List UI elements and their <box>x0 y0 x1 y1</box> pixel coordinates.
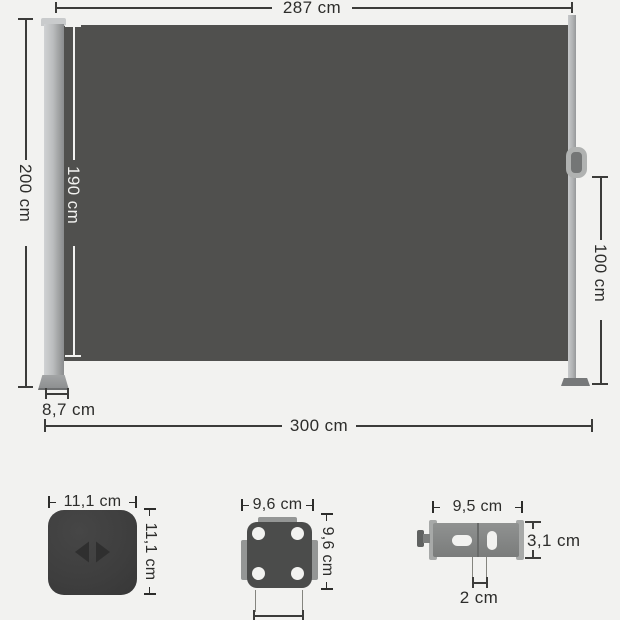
dim-left-line-bottom <box>25 246 27 387</box>
grip-arrow-left-icon <box>75 540 89 564</box>
left-post-foot <box>38 375 69 390</box>
bracket-slot-vertical <box>487 531 497 550</box>
grip-arrow-right-icon <box>96 540 110 564</box>
dim-fabric-line-top <box>73 25 75 160</box>
bracket-ext-line-right <box>486 557 487 578</box>
plate-bottom-dim-line <box>253 615 304 617</box>
dim-right-tick-bottom <box>592 383 608 385</box>
dim-tick-icon <box>144 587 156 595</box>
wall-bracket-part <box>433 523 519 557</box>
dim-top-tick-right <box>571 2 573 13</box>
left-post <box>44 24 64 375</box>
bracket-slot-tick-left <box>472 577 474 588</box>
roller-end-bar-foot <box>561 378 590 386</box>
pull-handle <box>566 147 587 178</box>
bracket-ext-line-left <box>472 557 473 578</box>
cap-height-dim: 11,1 cm <box>142 508 158 595</box>
dim-bottom-label: 300 cm <box>282 417 356 435</box>
dim-top-line-left <box>55 7 272 9</box>
corner-cap-part <box>48 510 137 595</box>
dim-tick-icon <box>241 499 249 511</box>
bracket-height-stem-top <box>532 521 534 529</box>
dim-fabric-line-bottom <box>73 246 75 356</box>
bracket-knob-stem <box>423 534 430 543</box>
awning-dimension-diagram: 287 cm 200 cm 190 cm 100 cm 8,7 cm 300 c… <box>0 0 620 620</box>
dim-bottom-tick-right <box>591 419 593 432</box>
plate-ext-line-left <box>255 590 256 612</box>
screw-hole-icon <box>252 567 265 580</box>
dim-left-tick-bottom <box>18 386 33 388</box>
mounting-plate-part <box>247 522 312 588</box>
dim-tick-icon <box>144 508 156 516</box>
dim-top-label: 287 cm <box>272 0 352 17</box>
dim-left-tick-top <box>18 18 33 20</box>
bracket-slot-horizontal <box>452 535 472 546</box>
dim-tick-icon <box>432 501 440 513</box>
plate-width-dim: 9,6 cm <box>241 497 314 513</box>
dim-bottom-tick-left <box>44 419 46 432</box>
dim-fabric-label: 190 cm <box>64 166 82 224</box>
dim-right-line-bottom <box>600 320 602 384</box>
dim-fabric-tick-bottom <box>65 355 81 357</box>
bracket-height-stem-bottom <box>532 550 534 558</box>
screw-hole-icon <box>252 527 265 540</box>
plate-width-label: 9,6 cm <box>253 496 303 514</box>
bracket-slot-dim-line <box>472 582 487 584</box>
plate-ext-line-right <box>302 590 303 612</box>
cap-height-label: 11,1 cm <box>141 523 159 581</box>
dim-tick-icon <box>129 496 137 508</box>
dim-top-line-right <box>352 7 572 9</box>
dim-depth-line <box>45 393 68 395</box>
cap-width-dim: 11,1 cm <box>48 494 137 510</box>
bracket-slot-label: 2 cm <box>449 589 509 607</box>
cap-width-label: 11,1 cm <box>64 493 122 511</box>
screw-hole-icon <box>291 527 304 540</box>
dim-bottom-line-left <box>44 425 282 427</box>
dim-right-label: 100 cm <box>591 244 609 302</box>
bracket-width-label: 9,5 cm <box>453 498 503 516</box>
plate-height-label: 9,6 cm <box>318 527 336 577</box>
roller-end-bar <box>568 15 576 378</box>
dim-tick-icon <box>321 513 333 521</box>
dim-fabric-tick-top <box>65 25 81 27</box>
dim-tick-icon <box>306 499 314 511</box>
plate-bottom-tick-right <box>302 610 304 620</box>
screw-hole-icon <box>291 567 304 580</box>
dim-tick-icon <box>48 496 56 508</box>
dim-depth-tick-right <box>67 388 69 399</box>
dim-right-tick-top <box>592 176 608 178</box>
dim-tick-icon <box>321 582 333 590</box>
awning-fabric <box>64 25 568 361</box>
dim-left-label: 200 cm <box>16 164 34 222</box>
dim-depth-tick-left <box>45 388 47 399</box>
dim-left-line-top <box>25 18 27 160</box>
bracket-width-dim: 9,5 cm <box>432 499 523 515</box>
dim-depth-label: 8,7 cm <box>42 401 95 419</box>
dim-top-tick-left <box>55 2 57 13</box>
dim-tick-icon <box>515 501 523 513</box>
bracket-slot-tick-right <box>486 577 488 588</box>
dim-bottom-line-right <box>356 425 592 427</box>
bracket-height-label: 3,1 cm <box>527 532 580 550</box>
plate-height-dim: 9,6 cm <box>319 513 335 590</box>
dim-right-line-top <box>600 177 602 240</box>
bracket-divider <box>477 523 479 557</box>
plate-bottom-tick-left <box>253 610 255 620</box>
